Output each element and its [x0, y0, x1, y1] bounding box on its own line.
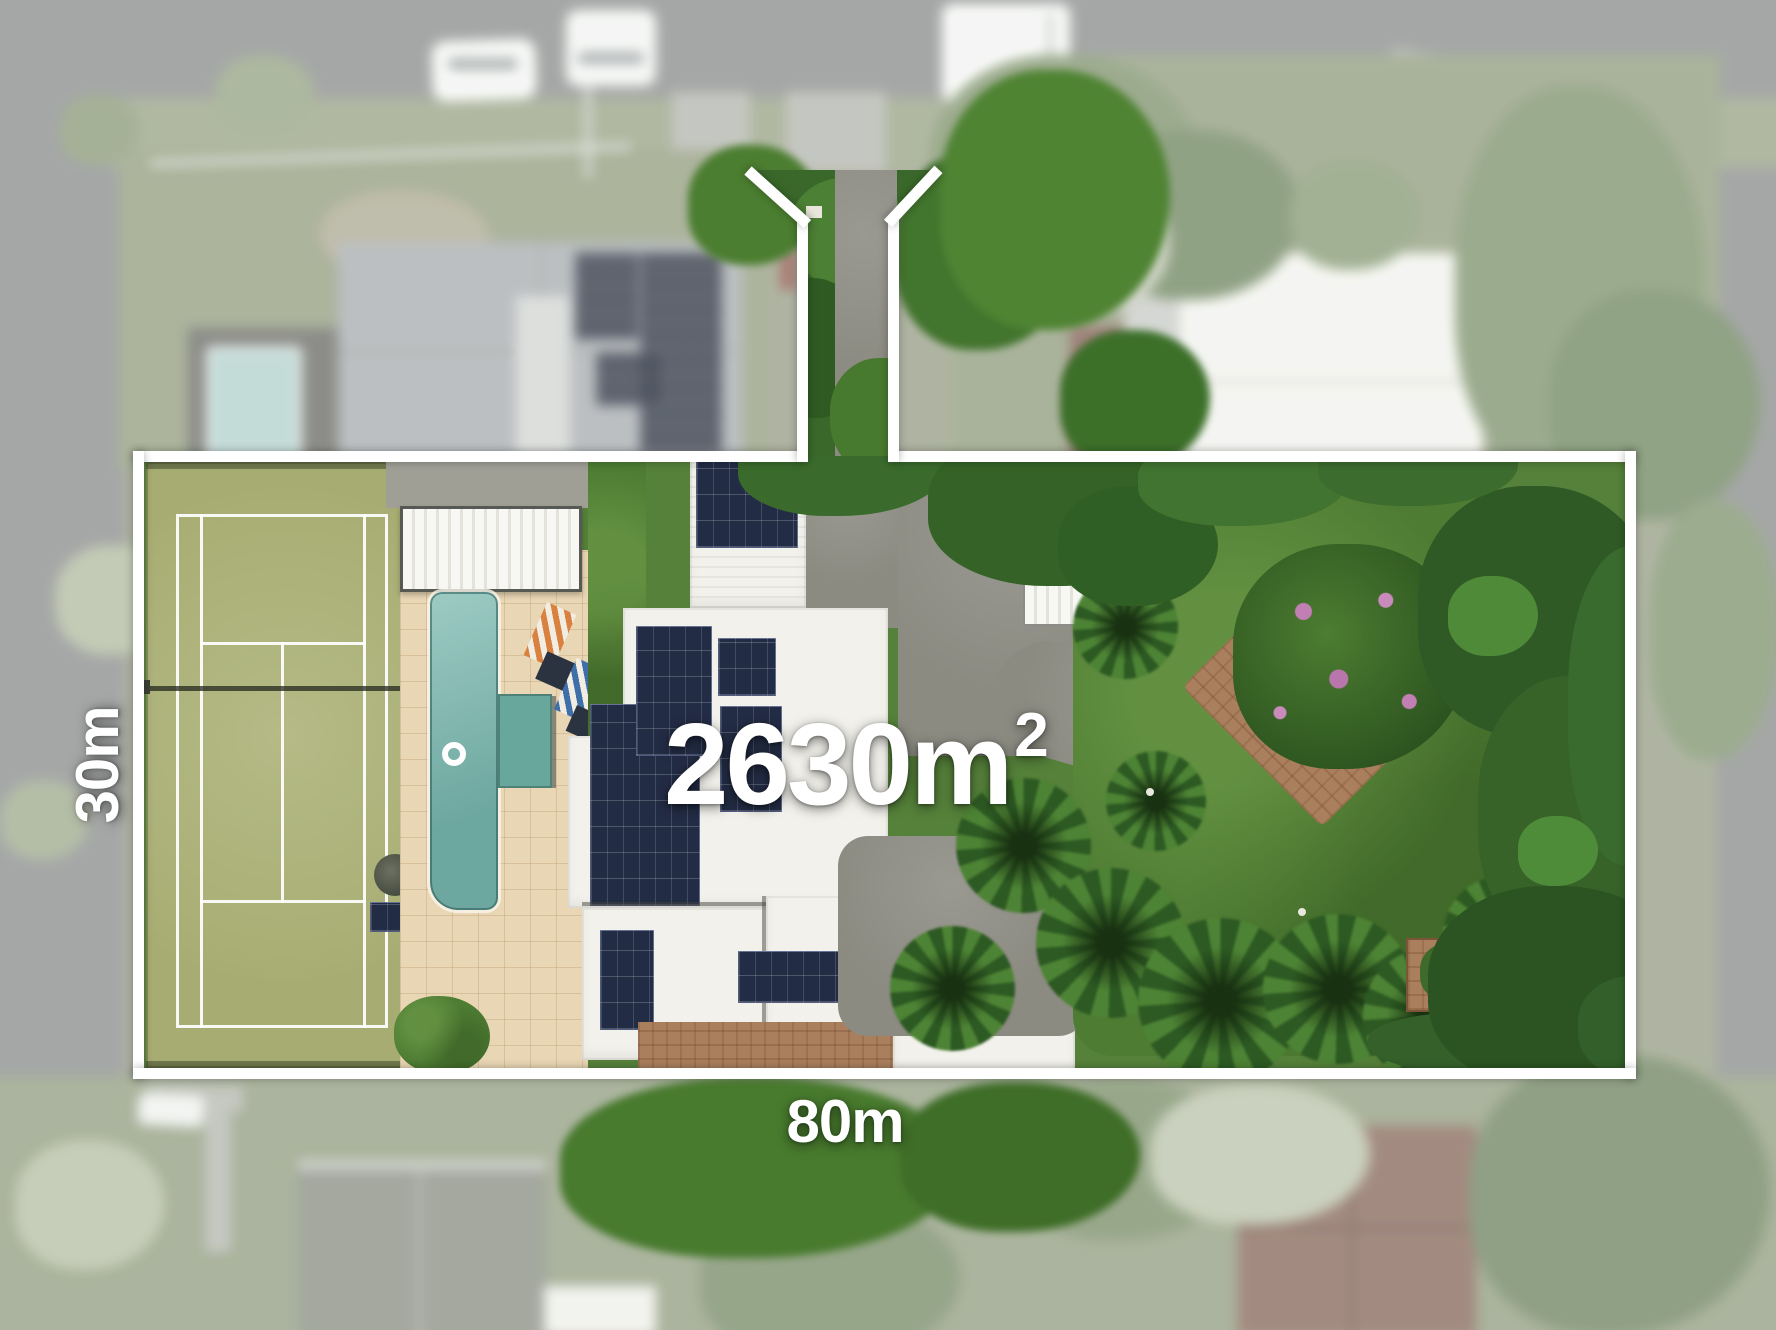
spa	[498, 694, 552, 788]
court-alley-line	[363, 514, 366, 1028]
lawn-patch	[394, 996, 490, 1074]
palm-tree	[890, 926, 1015, 1051]
tree	[1060, 330, 1210, 470]
garden-light	[1146, 788, 1154, 796]
frontage-label: 80m	[786, 1092, 903, 1152]
tennis-court	[146, 462, 426, 1068]
tree	[940, 70, 1170, 330]
boundary-left-edge	[133, 451, 144, 1079]
letterbox	[806, 206, 822, 218]
garden-light	[1298, 908, 1306, 916]
fence-shadow	[146, 1061, 426, 1068]
corridor-right-line	[888, 217, 899, 462]
pool-ring-float	[442, 742, 466, 766]
boundary-bottom-edge	[133, 1068, 1636, 1079]
palm-tree	[1106, 751, 1206, 851]
court-alley-line	[200, 514, 203, 1028]
boundary-right-edge	[1625, 451, 1636, 1079]
tree	[900, 1082, 1140, 1232]
area-superscript: 2	[1014, 705, 1045, 767]
area-value: 2630	[664, 699, 910, 829]
solar-array	[718, 638, 776, 696]
tennis-net	[146, 686, 426, 691]
area-unit: m	[910, 699, 1010, 829]
solar-array	[738, 951, 840, 1003]
solar-array	[600, 930, 654, 1030]
aerial-property-photo: 2630m2 30m 80m	[0, 0, 1776, 1330]
boundary-top-right-segment	[893, 451, 1636, 462]
boundary-top-left-segment	[133, 451, 803, 462]
corridor-left-line	[797, 217, 808, 462]
court-center-line	[281, 642, 284, 903]
area-label: 2630m2	[664, 706, 1046, 822]
pergola-roof	[400, 506, 582, 592]
concrete-patch	[386, 456, 598, 508]
depth-label: 30m	[68, 706, 128, 823]
fence-shadow	[146, 462, 426, 469]
